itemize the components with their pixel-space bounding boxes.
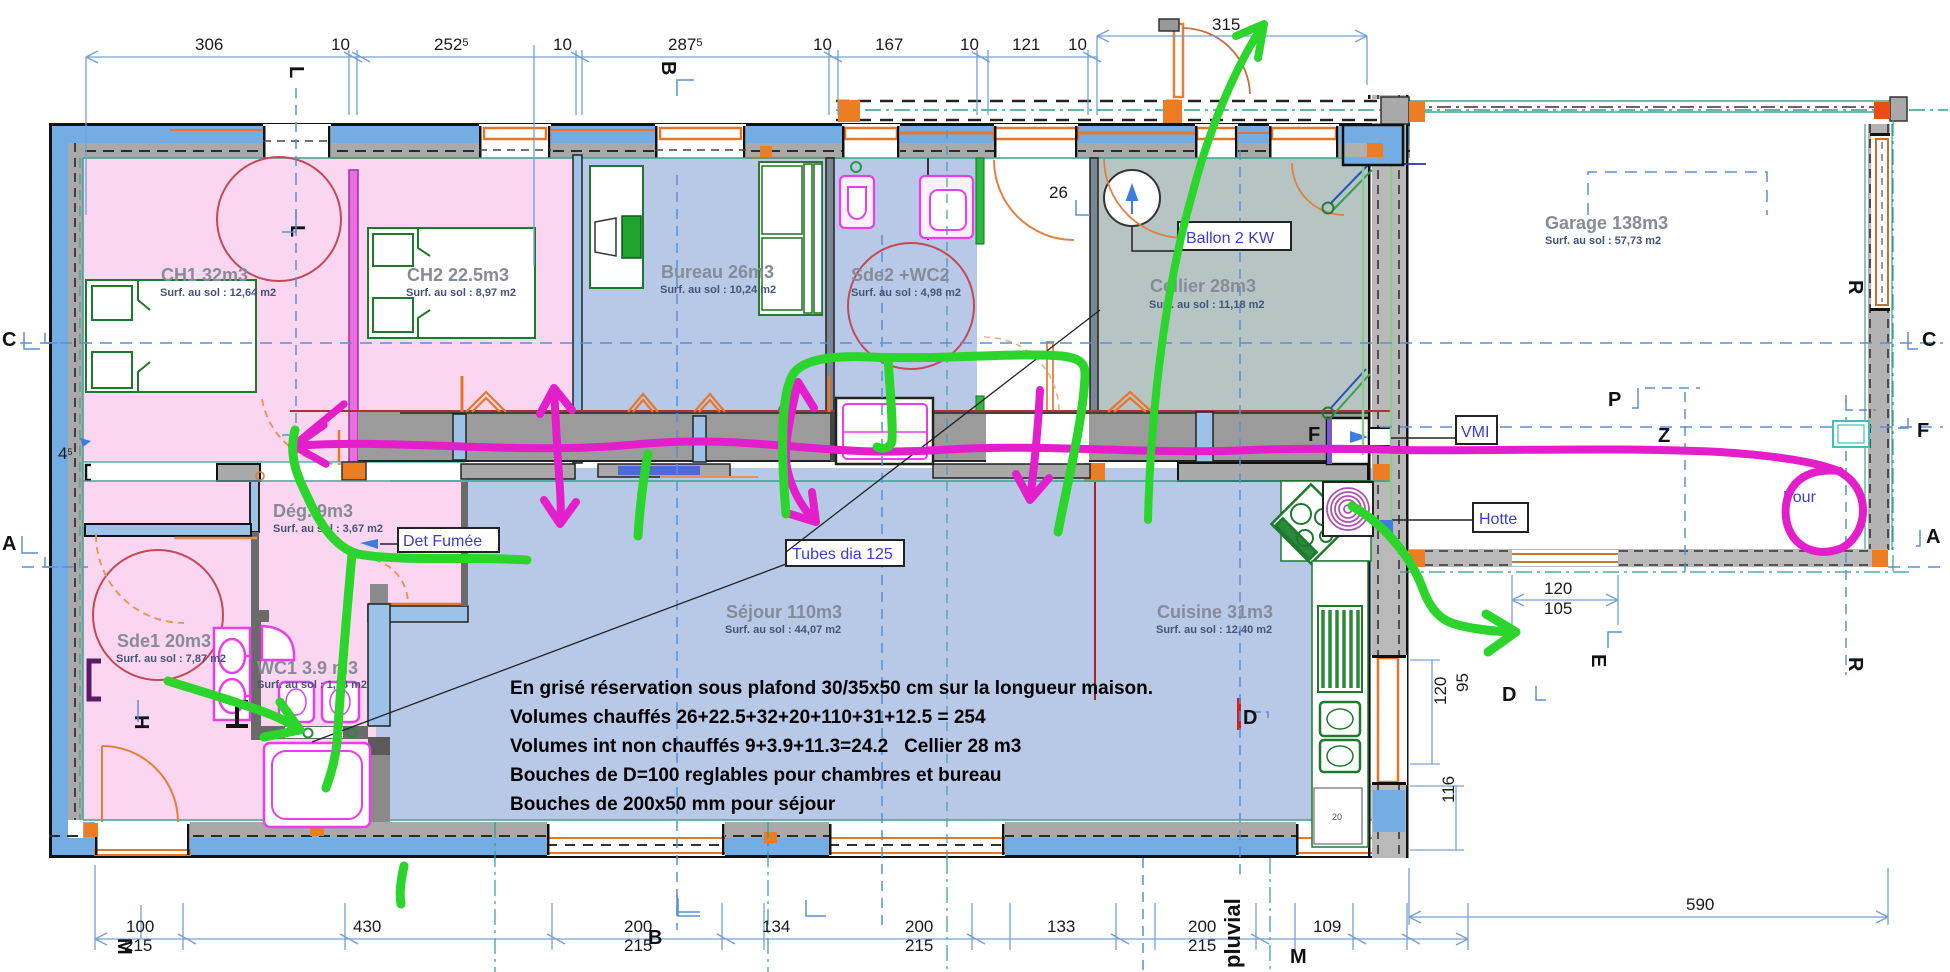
svg-text:F: F <box>1917 420 1929 442</box>
svg-text:R: R <box>1844 657 1866 672</box>
svg-text:D: D <box>1502 684 1516 706</box>
svg-text:F: F <box>1308 424 1320 446</box>
svg-text:B: B <box>648 927 662 949</box>
svg-text:590: 590 <box>1686 895 1714 914</box>
svg-text:Surf. au sol : 1,58 m2: Surf. au sol : 1,58 m2 <box>257 679 367 691</box>
svg-text:Surf. au sol : 12,64 m2: Surf. au sol : 12,64 m2 <box>160 287 276 299</box>
svg-text:26: 26 <box>1049 183 1068 202</box>
svg-text:pluvial: pluvial <box>1220 898 1245 968</box>
svg-text:Bureau 26m3: Bureau 26m3 <box>661 262 774 282</box>
svg-text:120: 120 <box>1544 579 1572 598</box>
svg-text:L: L <box>285 66 307 78</box>
svg-text:E: E <box>1587 654 1609 667</box>
svg-text:105: 105 <box>1544 599 1572 618</box>
svg-text:20: 20 <box>1332 812 1342 822</box>
svg-text:VMI: VMI <box>1461 424 1489 441</box>
svg-text:215: 215 <box>1188 936 1216 955</box>
svg-text:Bouches de 200x50 mm pour séjo: Bouches de 200x50 mm pour séjour <box>510 794 836 815</box>
svg-text:Sde2 +WC2: Sde2 +WC2 <box>851 265 950 285</box>
svg-text:M: M <box>113 938 135 955</box>
svg-text:10: 10 <box>553 35 572 54</box>
svg-text:133: 133 <box>1047 917 1075 936</box>
svg-text:116: 116 <box>1439 776 1458 803</box>
svg-text:100: 100 <box>126 917 154 936</box>
svg-text:120: 120 <box>1431 677 1450 705</box>
svg-text:Surf. au sol : 57,73 m2: Surf. au sol : 57,73 m2 <box>1545 235 1661 247</box>
svg-text:A: A <box>1926 526 1940 548</box>
svg-text:D: D <box>1243 707 1257 729</box>
svg-text:95: 95 <box>1453 673 1472 692</box>
svg-text:C: C <box>2 329 16 351</box>
svg-text:Surf. au sol : 12,40 m2: Surf. au sol : 12,40 m2 <box>1156 624 1272 636</box>
svg-text:Surf. au sol : 44,07 m2: Surf. au sol : 44,07 m2 <box>725 624 841 636</box>
svg-text:Z: Z <box>1658 425 1670 447</box>
svg-text:Séjour 110m3: Séjour 110m3 <box>726 602 842 622</box>
svg-text:10: 10 <box>960 35 979 54</box>
svg-text:Surf. au sol : 4,98 m2: Surf. au sol : 4,98 m2 <box>851 287 961 299</box>
svg-text:306: 306 <box>195 35 223 54</box>
svg-text:Sde1 20m3: Sde1 20m3 <box>117 631 211 651</box>
svg-text:A: A <box>2 533 16 555</box>
svg-text:121: 121 <box>1012 35 1040 54</box>
svg-text:R: R <box>1844 280 1866 295</box>
svg-text:315: 315 <box>1212 15 1240 34</box>
svg-text:109: 109 <box>1313 917 1341 936</box>
svg-text:Bouches de D=100 reglables pou: Bouches de D=100 reglables pour chambres… <box>510 765 1002 786</box>
svg-text:CH1 32m3: CH1 32m3 <box>161 265 248 285</box>
svg-text:134: 134 <box>762 917 790 936</box>
svg-text:En grisé réservation sous plaf: En grisé réservation sous plafond 30/35x… <box>510 678 1153 699</box>
svg-text:10: 10 <box>813 35 832 54</box>
svg-text:Det Fumée: Det Fumée <box>403 533 482 550</box>
svg-text:Volumes chauffés 26+22.5+32+20: Volumes chauffés 26+22.5+32+20+110+31+12… <box>510 707 986 728</box>
svg-text:Tubes dia 125: Tubes dia 125 <box>792 546 893 563</box>
svg-text:167: 167 <box>875 35 903 54</box>
svg-text:Cuisine 31m3: Cuisine 31m3 <box>1157 602 1273 622</box>
svg-text:B: B <box>657 61 679 75</box>
svg-text:CH2 22.5m3: CH2 22.5m3 <box>407 265 509 285</box>
svg-text:215: 215 <box>905 936 933 955</box>
svg-text:430: 430 <box>353 917 381 936</box>
svg-text:Surf. au sol : 8,97 m2: Surf. au sol : 8,97 m2 <box>406 287 516 299</box>
svg-text:L: L <box>286 225 308 237</box>
svg-text:10: 10 <box>1068 35 1087 54</box>
svg-text:Surf. au sol : 10,24 m2: Surf. au sol : 10,24 m2 <box>660 284 776 296</box>
svg-text:Surf. au sol : 7,87 m2: Surf. au sol : 7,87 m2 <box>116 653 226 665</box>
svg-text:Volumes int non chauffés 9+3.9: Volumes int non chauffés 9+3.9+11.3=24.2… <box>510 736 1021 757</box>
svg-text:10: 10 <box>331 35 350 54</box>
svg-text:P: P <box>1608 389 1621 411</box>
svg-text:Garage 138m3: Garage 138m3 <box>1545 213 1668 233</box>
svg-text:Ballon 2 KW: Ballon 2 KW <box>1186 230 1275 247</box>
svg-text:H: H <box>130 715 152 729</box>
svg-text:200: 200 <box>1188 917 1216 936</box>
svg-text:200: 200 <box>905 917 933 936</box>
svg-text:C: C <box>1922 329 1936 351</box>
svg-text:M: M <box>1290 946 1307 968</box>
svg-text:Hotte: Hotte <box>1479 511 1517 528</box>
